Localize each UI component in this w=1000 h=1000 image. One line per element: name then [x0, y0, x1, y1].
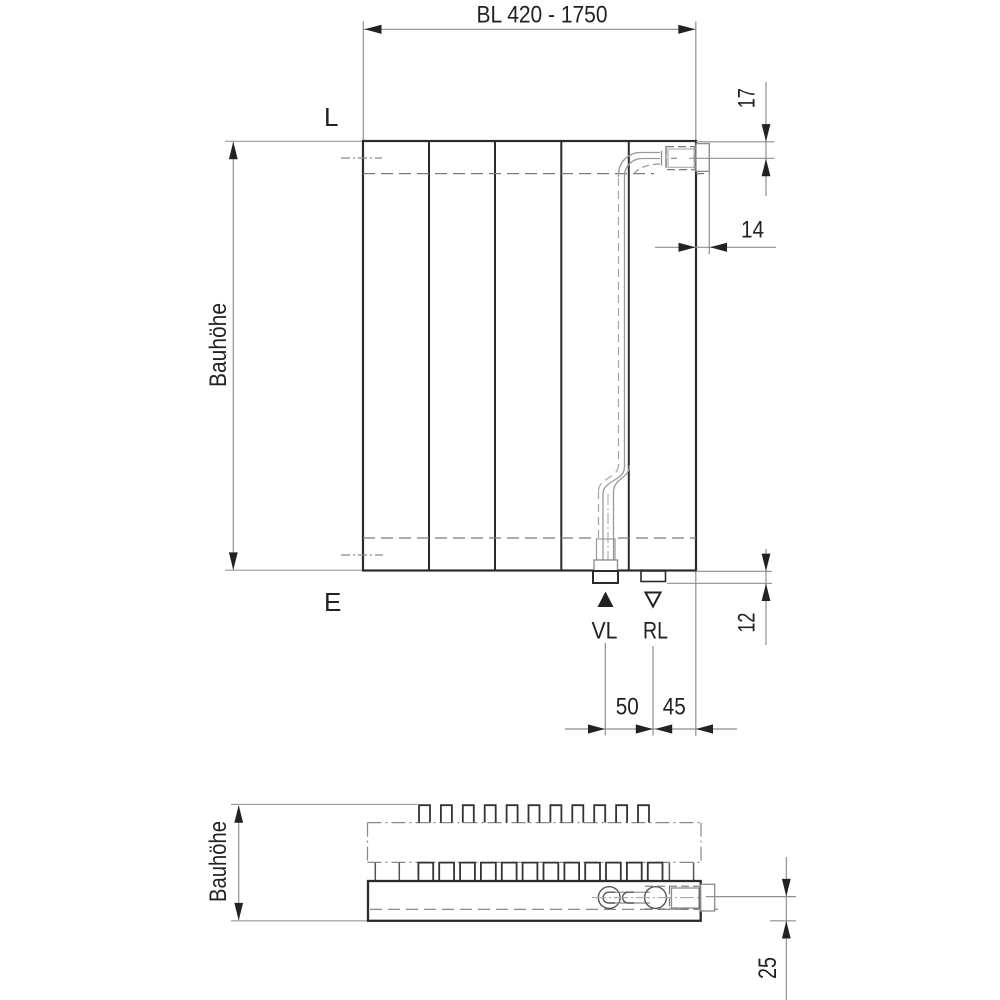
svg-text:RL: RL [643, 618, 668, 645]
svg-text:E: E [324, 587, 341, 617]
svg-text:L: L [324, 102, 338, 132]
svg-text:12: 12 [734, 613, 761, 633]
svg-text:17: 17 [734, 88, 761, 108]
svg-text:14: 14 [741, 216, 764, 243]
svg-text:25: 25 [754, 957, 782, 979]
svg-text:50: 50 [616, 694, 639, 721]
svg-text:Bauhöhe: Bauhöhe [205, 821, 232, 902]
svg-text:45: 45 [663, 694, 686, 721]
svg-text:BL 420 - 1750: BL 420 - 1750 [477, 2, 608, 29]
svg-text:VL: VL [592, 618, 618, 645]
svg-text:Bauhöhe: Bauhöhe [205, 303, 232, 387]
